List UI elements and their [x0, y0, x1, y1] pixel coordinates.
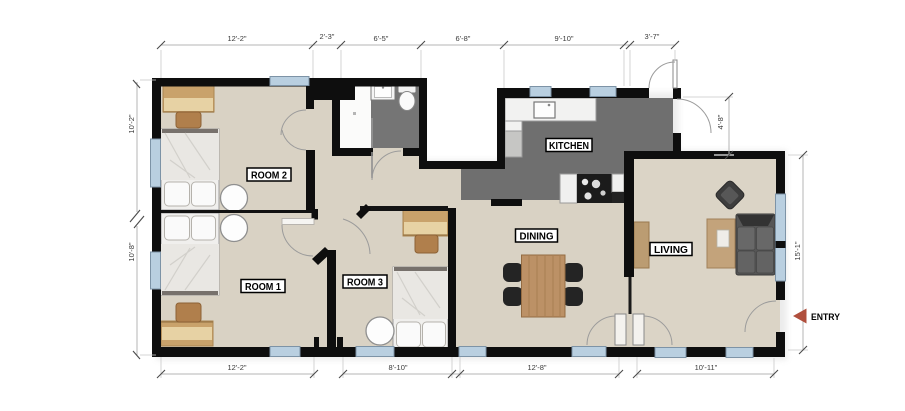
svg-text:ROOM 2: ROOM 2	[251, 170, 287, 182]
svg-text:10'-8": 10'-8"	[127, 242, 136, 261]
svg-text:ROOM 3: ROOM 3	[347, 277, 383, 289]
svg-text:12'-2": 12'-2"	[227, 363, 246, 372]
svg-text:10'-2": 10'-2"	[127, 114, 136, 133]
svg-text:8'-10": 8'-10"	[388, 363, 407, 372]
svg-text:LIVING: LIVING	[654, 244, 688, 256]
svg-text:KITCHEN: KITCHEN	[549, 140, 589, 152]
svg-text:15'-1": 15'-1"	[793, 241, 802, 260]
svg-text:10'-11": 10'-11"	[695, 363, 718, 372]
svg-text:4'-8": 4'-8"	[716, 114, 725, 129]
svg-text:ENTRY: ENTRY	[811, 312, 841, 323]
svg-text:ROOM 1: ROOM 1	[245, 281, 281, 293]
svg-text:9'-10": 9'-10"	[554, 34, 573, 43]
svg-text:DINING: DINING	[520, 231, 554, 243]
svg-text:3'-7": 3'-7"	[645, 32, 660, 41]
svg-text:12'-8": 12'-8"	[527, 363, 546, 372]
svg-text:6'-5": 6'-5"	[374, 34, 389, 43]
svg-text:2'-3": 2'-3"	[320, 32, 335, 41]
svg-text:6'-8": 6'-8"	[456, 34, 471, 43]
svg-text:12'-2": 12'-2"	[227, 34, 246, 43]
